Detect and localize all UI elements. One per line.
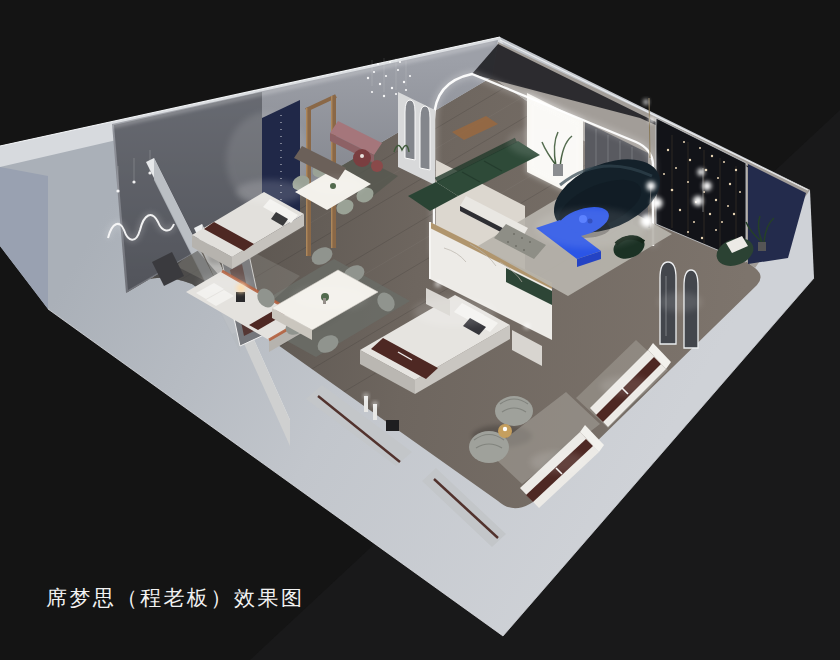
cylinder-lamp-glow-2 bbox=[373, 402, 377, 406]
cylinder-lamp-2 bbox=[373, 404, 377, 420]
palm-pot bbox=[758, 242, 766, 251]
oval-mirror-1 bbox=[405, 100, 415, 160]
plant-pot bbox=[553, 164, 563, 176]
oval-mirror-2 bbox=[420, 106, 430, 170]
render-caption: 席梦思（程老板）效果图 bbox=[46, 584, 305, 612]
bedside-lamp-1 bbox=[436, 282, 441, 287]
interior-render-illustration bbox=[0, 0, 840, 660]
cylinder-lamp-1 bbox=[364, 396, 368, 412]
cylinder-lamp-glow-1 bbox=[364, 394, 368, 398]
bed-c-nightstand bbox=[236, 292, 245, 302]
render-canvas: 席梦思（程老板）效果图 bbox=[0, 0, 840, 660]
coffee-cup bbox=[503, 427, 507, 431]
swivel-chair-1 bbox=[495, 396, 533, 426]
bedside-lamp-2 bbox=[525, 324, 530, 329]
round-table-2 bbox=[371, 160, 383, 172]
dark-speaker-box bbox=[386, 420, 399, 431]
